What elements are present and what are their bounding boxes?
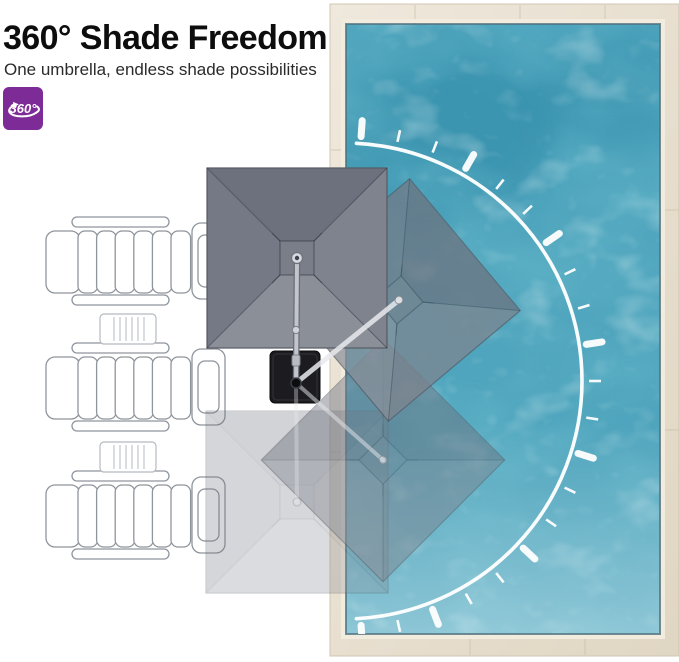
chair-armrest bbox=[72, 421, 169, 431]
pool-scene bbox=[0, 0, 679, 662]
infographic-360-shade: 360° Shade Freedom One umbrella, endless… bbox=[0, 0, 679, 662]
arm-hub bbox=[293, 498, 301, 506]
dial-tick-major bbox=[361, 121, 362, 137]
chair-slat bbox=[97, 485, 117, 547]
arm-south-ghost bbox=[296, 383, 297, 502]
chair-slat bbox=[115, 231, 135, 293]
chair-slat bbox=[115, 357, 135, 419]
chair-headrest-inner bbox=[198, 361, 219, 413]
chair-slat bbox=[134, 357, 154, 419]
pole-joint bbox=[292, 326, 299, 333]
dial-tick-major bbox=[578, 453, 593, 458]
chair-slat bbox=[152, 231, 172, 293]
chair-slat bbox=[78, 231, 98, 293]
side-table bbox=[100, 314, 156, 344]
page-title: 360° Shade Freedom bbox=[3, 20, 327, 56]
lounge-chair bbox=[46, 217, 225, 305]
chair-pad bbox=[46, 231, 80, 293]
chair-slat bbox=[97, 231, 117, 293]
chair-slat bbox=[171, 357, 191, 419]
chair-slat bbox=[115, 485, 135, 547]
chair-armrest bbox=[72, 549, 169, 559]
chair-pad bbox=[46, 357, 80, 419]
chair-slat bbox=[78, 357, 98, 419]
chair-slat bbox=[78, 485, 98, 547]
chair-slat bbox=[171, 485, 191, 547]
canopy-hub-knob bbox=[295, 256, 299, 260]
pivot-point bbox=[291, 378, 301, 388]
chair-slat bbox=[171, 231, 191, 293]
chair-slat bbox=[152, 357, 172, 419]
chair-slat bbox=[134, 485, 154, 547]
arm-hub bbox=[379, 456, 387, 464]
lounge-chair bbox=[46, 343, 225, 431]
pole-collar bbox=[292, 355, 300, 366]
dial-tick-minor bbox=[586, 418, 598, 420]
lounge-chair bbox=[46, 471, 225, 559]
chair-slat bbox=[134, 231, 154, 293]
chair-armrest bbox=[72, 217, 169, 227]
chair-slat bbox=[152, 485, 172, 547]
side-table bbox=[100, 442, 156, 472]
dial-tick-major bbox=[586, 342, 602, 344]
page-subtitle: One umbrella, endless shade possibilitie… bbox=[4, 60, 317, 80]
chair-pad bbox=[46, 485, 80, 547]
arm-hub bbox=[395, 296, 403, 304]
rotation-360-icon: 360° bbox=[3, 87, 43, 130]
chair-slat bbox=[97, 357, 117, 419]
chair-armrest bbox=[72, 295, 169, 305]
